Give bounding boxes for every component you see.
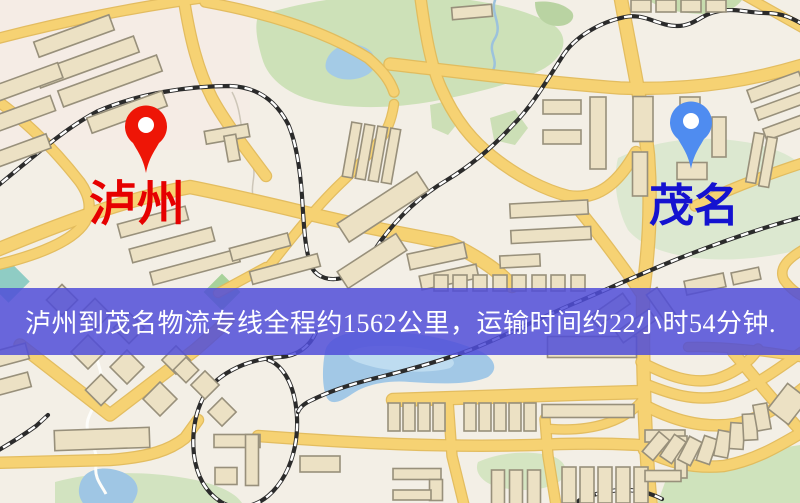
route-info-banner: 泸州到茂名物流专线全程约1562公里，运输时间约22小时54分钟. — [0, 288, 800, 355]
route-info-text: 泸州到茂名物流专线全程约1562公里，运输时间约22小时54分钟. — [25, 303, 776, 340]
label-luzhou[interactable]: 泸州 — [89, 178, 185, 231]
pin-red-hole — [138, 117, 154, 133]
label-maoming[interactable]: 茂名 — [649, 181, 739, 231]
map-canvas[interactable]: 泸州 茂名 — [0, 0, 800, 503]
pin-blue-hole — [683, 113, 699, 129]
map-screenshot: 泸州 茂名 泸州到茂名物流专线全程约1562公里，运输时间约22小时54分钟. — [0, 0, 800, 503]
